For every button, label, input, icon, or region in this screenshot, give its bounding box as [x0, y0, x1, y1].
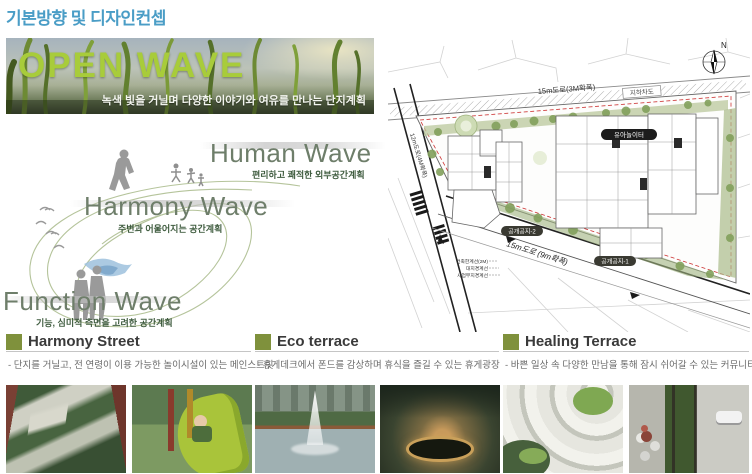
building-core-left: [484, 166, 491, 178]
section-title: Eco terrace: [277, 333, 359, 350]
wave-desc-human: 편리하고 쾌적한 외부공간계획: [252, 168, 365, 181]
north-label: N: [721, 41, 727, 50]
site-plan: 15m도로(3M확폭) 지하차도 12m도로(4M확폭): [388, 38, 750, 332]
olive-square-icon: [503, 334, 519, 350]
banner-subtitle: 녹색 빛을 거닐며 다양한 이야기와 여유를 만나는 단지계획: [102, 92, 366, 108]
wave-title-function: Function Wave: [3, 286, 182, 317]
section-desc: - 단지를 거닐고, 전 연령이 이용 가능한 놀이시설이 있는 메인스트릿: [8, 357, 274, 371]
water-ripple: [291, 443, 339, 455]
page-title: 기본방향 및 디자인컨셉: [6, 4, 166, 29]
car-shape: [716, 411, 742, 423]
photo-healing-street: [629, 385, 749, 473]
open-wave-banner: OPEN WAVE 녹색 빛을 거닐며 다양한 이야기와 여유를 만나는 단지계…: [6, 38, 374, 114]
pill-open-space-2: 공개공지-2: [508, 228, 536, 236]
plant-shape: [503, 440, 550, 473]
section-title: Harmony Street: [28, 333, 140, 350]
child-figure: [192, 426, 212, 442]
note-site-boundary: 대지경계선: [466, 265, 488, 272]
blue-wave-shape: [84, 259, 132, 277]
olive-square-icon: [255, 334, 271, 350]
playground-post: [168, 389, 174, 451]
section-healing-terrace: Healing Terrace - 바쁜 일상 속 다양한 만남을 통해 잠시 …: [503, 333, 749, 474]
section-desc: - 휴게데크에서 폰드를 감상하며 휴식을 즐길 수 있는 휴게광장: [257, 357, 500, 371]
photo-harmony-courtyard: [6, 385, 126, 473]
north-compass: N: [703, 41, 727, 74]
note-project-boundary: 사업부지경계선: [457, 272, 488, 279]
fountain-jet: [307, 390, 324, 445]
pill-playground: 유아놀이터: [614, 130, 644, 139]
pond-shape: [406, 436, 473, 462]
wave-desc-function: 기능, 심미적 측면을 고려한 공간계획: [36, 316, 173, 329]
section-harmony-street: Harmony Street - 단지를 거닐고, 전 연령이 이용 가능한 놀…: [6, 333, 251, 474]
photo-harmony-playground: [132, 385, 252, 473]
olive-square-icon: [6, 334, 22, 350]
note-building-limit: 건축한계선(2M): [456, 258, 488, 265]
photo-healing-plaza: [503, 385, 623, 473]
section-header: Harmony Street: [6, 333, 251, 352]
section-title: Healing Terrace: [525, 333, 636, 350]
cafe-tables: [636, 433, 646, 443]
pill-open-space-1: 공개공지-1: [601, 258, 629, 266]
walking-person-silhouette: [109, 150, 134, 192]
section-header: Healing Terrace: [503, 333, 749, 352]
wave-title-human: Human Wave: [210, 138, 372, 169]
banner-title: OPEN WAVE: [18, 46, 245, 86]
slide: 기본방향 및 디자인컨셉 OPEN WAVE 녹색: [0, 0, 752, 474]
section-eco-terrace: Eco terrace - 휴게데크에서 폰드를 감상하며 휴식을 즐길 수 있…: [255, 333, 499, 474]
road-left-label: 12m도로(4M확폭): [408, 132, 429, 178]
section-desc: - 바쁜 일상 속 다양한 만남을 통해 잠시 쉬어갈 수 있는 커뮤니티광장: [505, 357, 752, 371]
photo-eco-evening-pond: [380, 385, 500, 473]
wave-concept-diagram: Human Wave 편리하고 쾌적한 외부공간계획 Harmony Wave …: [0, 128, 386, 333]
birds-silhouettes: [36, 208, 64, 249]
seated-person: [641, 425, 648, 432]
wave-title-harmony: Harmony Wave: [84, 191, 268, 222]
boundary-notes: 건축한계선(2M) 대지경계선 사업부지경계선: [456, 258, 501, 279]
wave-desc-harmony: 주변과 어울어지는 공간계획: [118, 222, 222, 235]
photo-eco-fountain: [255, 385, 375, 473]
section-header: Eco terrace: [255, 333, 499, 352]
